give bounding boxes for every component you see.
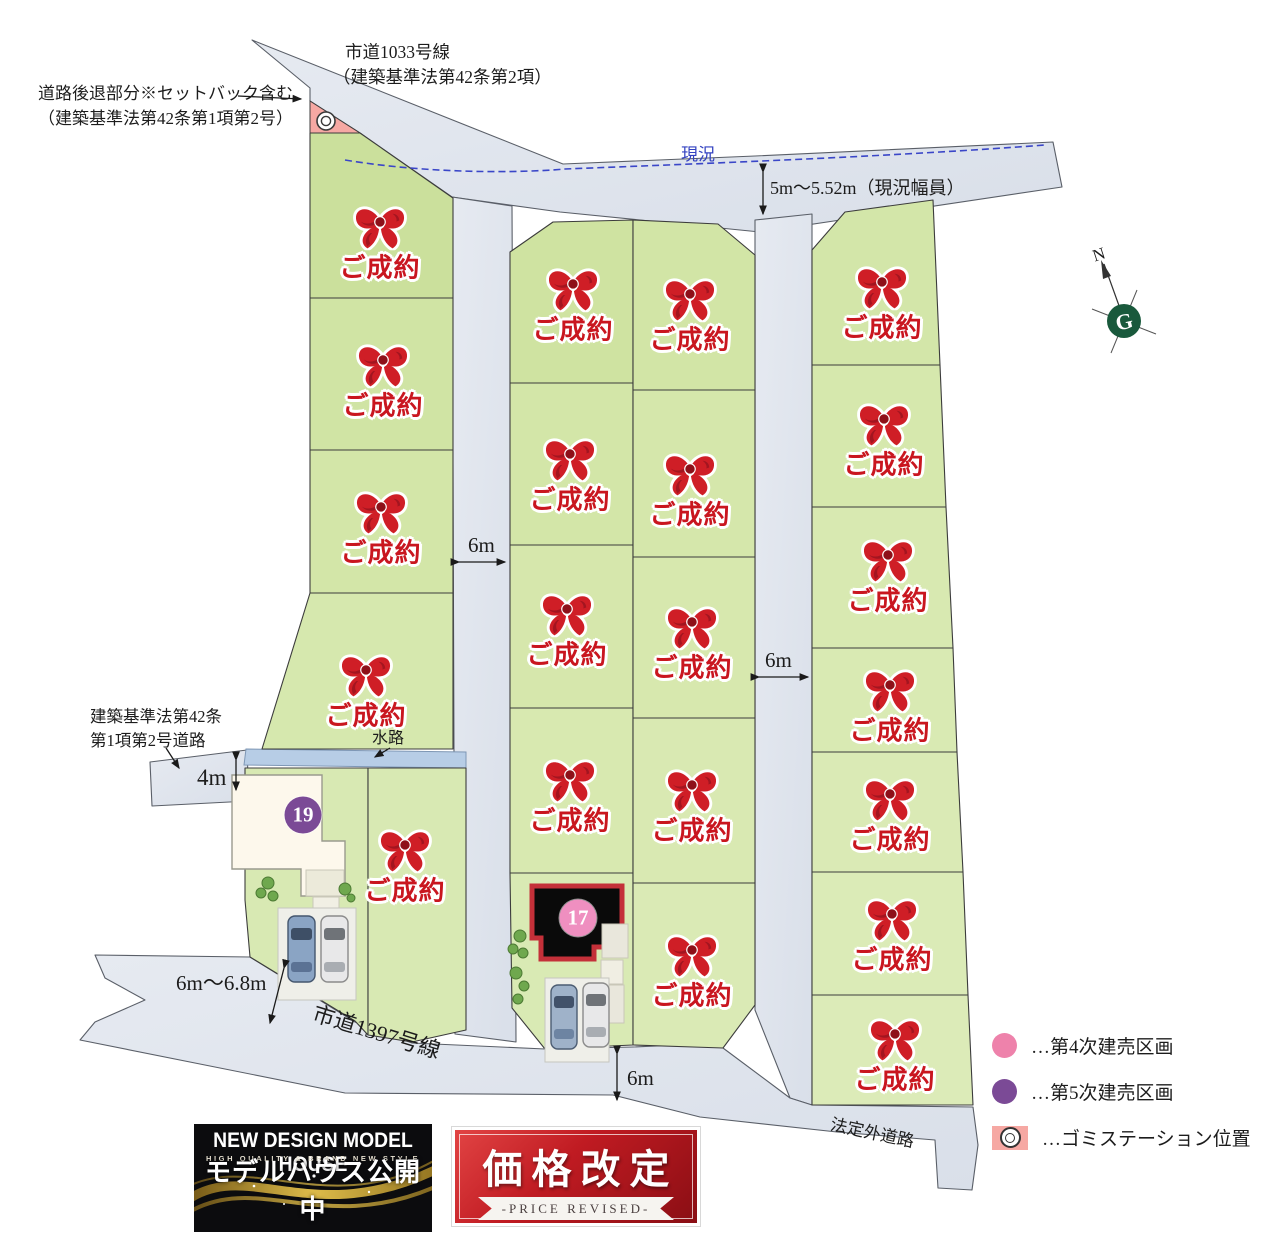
setback-note: 道路後退部分※セットバック含む （建築基準法第42条第1項第2号） (38, 82, 293, 131)
legend-item: …ゴミステーション位置 (992, 1124, 1251, 1151)
road-1033-label: 市道1033号線 （建築基準法第42条第2項） (333, 40, 552, 91)
law42-note: 建築基準法第42条 第1項第2号道路 (90, 705, 222, 753)
lot (812, 507, 953, 648)
price-badge-subtitle: -PRICE REVISED- (502, 1201, 651, 1217)
lot (812, 365, 946, 507)
car-white-19 (321, 916, 348, 982)
legend-item: …第4次建売区画 (992, 1032, 1251, 1059)
lot (262, 593, 453, 749)
lot (633, 220, 755, 390)
lot (812, 752, 963, 872)
lot (633, 557, 755, 718)
legend: …第4次建売区画…第5次建売区画…ゴミステーション位置 (992, 1032, 1251, 1170)
legend-circle-icon (992, 1033, 1017, 1058)
lot (633, 718, 755, 883)
car-blue-19 (288, 916, 315, 982)
lot (812, 995, 973, 1105)
lot (310, 298, 453, 450)
legend-label: …第4次建売区画 (1031, 1032, 1174, 1059)
genkyo-label: 現況 (681, 143, 715, 168)
lot-number-17: 17 (560, 900, 597, 937)
lot (510, 220, 633, 383)
dim-6m-left-label: 6m (468, 530, 495, 560)
price-badge-ribbon: -PRICE REVISED- (478, 1197, 674, 1220)
genkyo-width-label: 5m〜5.52m（現況幅員） (770, 175, 965, 201)
lot (510, 545, 633, 708)
lot (310, 450, 453, 593)
lot (633, 390, 755, 557)
dim-6to68-label: 6m〜6.8m (176, 968, 266, 998)
legend-circle-icon (992, 1079, 1017, 1104)
model-badge-caption: モデルハウス公開中 (194, 1152, 432, 1226)
waterway-strip (244, 749, 466, 768)
legend-label: …ゴミステーション位置 (1042, 1124, 1251, 1151)
model-house-badge[interactable]: NEW DESIGN MODEL HOUSE HIGH QUALITY & BR… (194, 1124, 432, 1232)
lot (812, 872, 968, 995)
garbage-station-icon (317, 112, 335, 130)
lot (368, 768, 466, 1042)
legend-label: …第5次建売区画 (1031, 1078, 1174, 1105)
lot-number-19: 19 (285, 797, 322, 834)
compass: G (1092, 260, 1156, 353)
price-revised-badge[interactable]: 価格改定 -PRICE REVISED- (452, 1127, 700, 1226)
dim-4m-label: 4m (197, 761, 226, 794)
legend-garbage-station-icon (992, 1126, 1028, 1150)
dim-6m-right-label: 6m (765, 645, 792, 675)
lot (510, 383, 633, 545)
car-white-17 (583, 983, 609, 1047)
waterway-label: 水路 (372, 727, 404, 750)
lot-map-page: G 道路後退部分※セットバック含む （建築基準法第42条第1項第2号） 市道10… (0, 0, 1280, 1247)
lot (812, 648, 957, 752)
car-blue-17 (551, 985, 577, 1049)
lot (510, 708, 633, 873)
legend-item: …第5次建売区画 (992, 1078, 1251, 1105)
dim-6m-bottom-label: 6m (627, 1063, 654, 1093)
lot (633, 883, 755, 1048)
lot (812, 200, 940, 365)
